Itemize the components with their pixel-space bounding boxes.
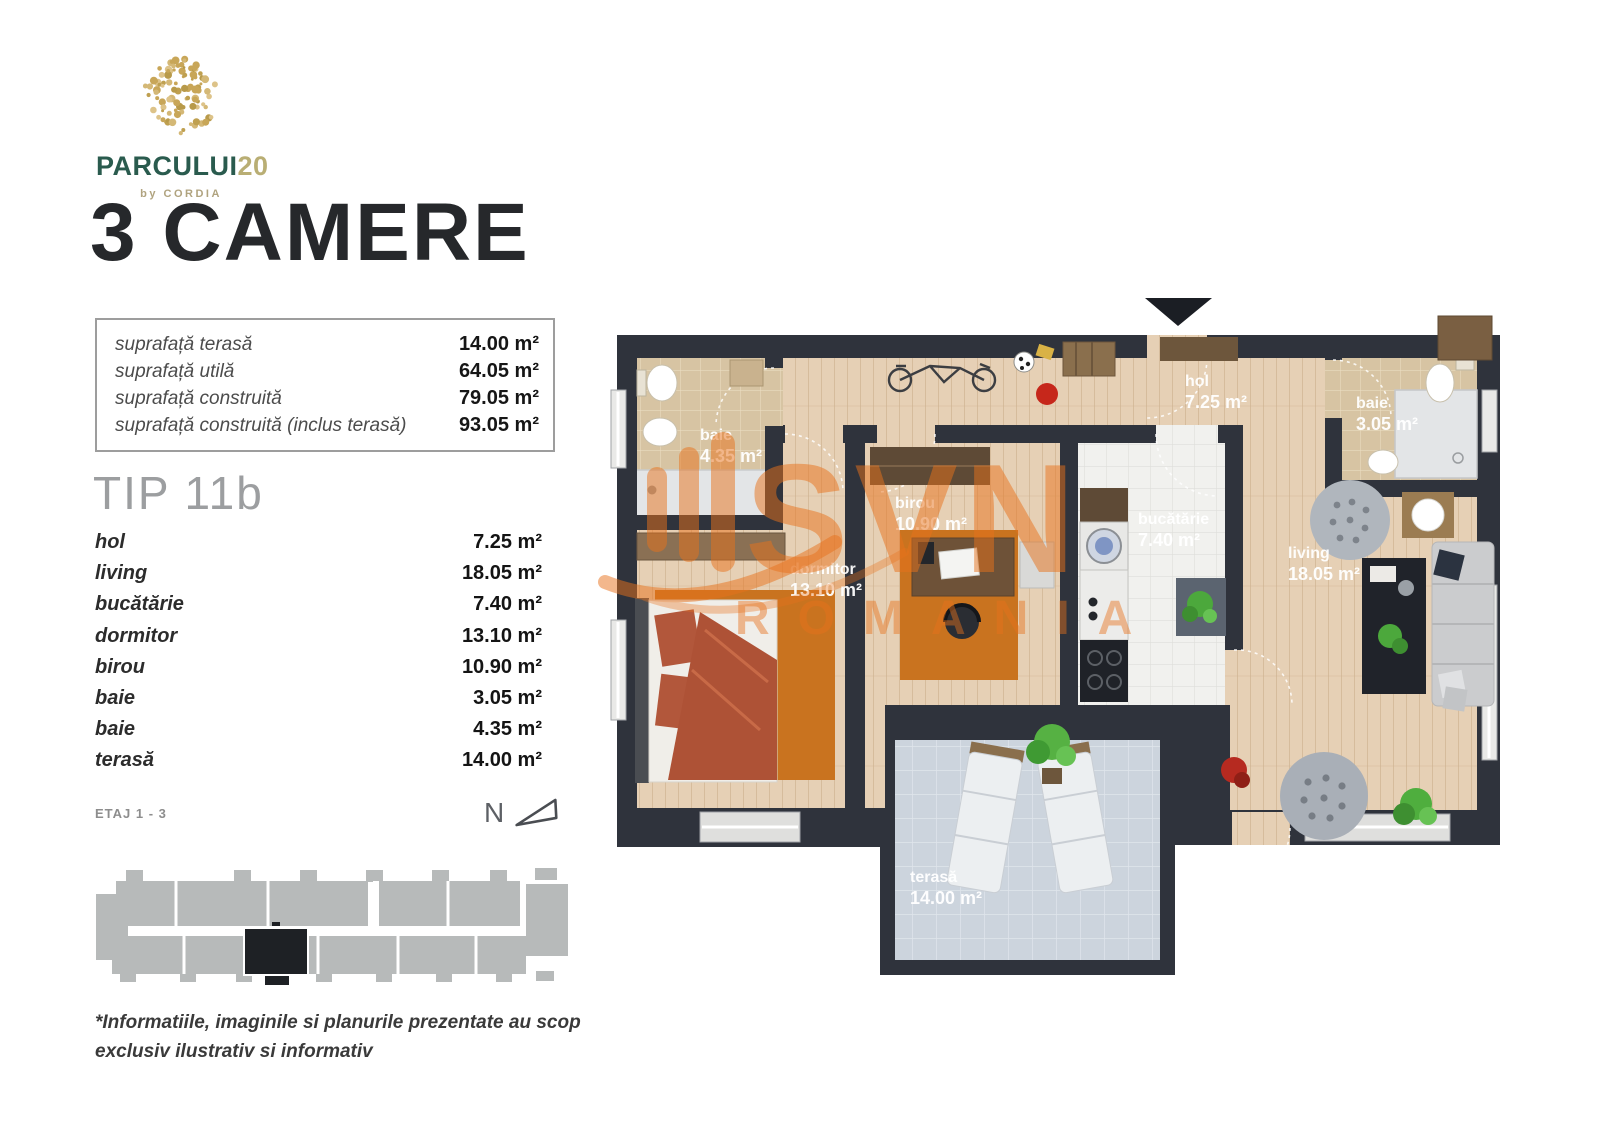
table-row: suprafață construită (inclus terasă) 93.… — [115, 412, 539, 439]
room-label: baie — [95, 714, 135, 745]
entrance-arrow-icon — [1145, 298, 1212, 326]
table-row: suprafață construită 79.05 m² — [115, 385, 539, 412]
room-name: dormitor — [790, 561, 856, 578]
room-label: terasă — [95, 745, 154, 776]
room-area: 14.00 m² — [910, 888, 982, 908]
room-name: bucătărie — [1138, 511, 1209, 528]
floor-plan: baie 4.35 m² hol 7.25 m² baie 3.05 m² bi… — [600, 290, 1520, 990]
summary-label: suprafață terasă — [115, 331, 252, 358]
north-compass: N — [484, 797, 560, 829]
room-label: birou — [95, 652, 145, 683]
list-item: hol7.25 m² — [95, 527, 542, 558]
room-value: 13.10 m² — [462, 621, 542, 652]
summary-value: 64.05 m² — [459, 358, 539, 385]
room-name: hol — [1185, 373, 1209, 390]
room-area: 13.10 m² — [790, 580, 862, 600]
highlighted-unit — [244, 922, 308, 986]
brand-name: PARCULUI20 — [96, 151, 266, 182]
room-value: 7.25 m² — [473, 527, 542, 558]
summary-label: suprafață construită (inclus terasă) — [115, 412, 406, 439]
room-name: baie — [700, 427, 732, 444]
room-label: dormitor — [95, 621, 177, 652]
room-name: baie — [1356, 395, 1388, 412]
brand-logo: PARCULUI20 by CORDIA — [96, 50, 266, 200]
room-area: 10.90 m² — [895, 514, 967, 534]
room-label: bucătărie — [95, 589, 184, 620]
unit-type-label: TIP 11b — [93, 466, 264, 520]
disclaimer-line: exclusiv ilustrativ si informativ — [95, 1037, 585, 1066]
summary-label: suprafață construită — [115, 385, 282, 412]
room-area: 3.05 m² — [1356, 414, 1418, 434]
list-item: birou10.90 m² — [95, 652, 542, 683]
room-area: 4.35 m² — [700, 446, 762, 466]
summary-label: suprafață utilă — [115, 358, 234, 385]
room-value: 10.90 m² — [462, 652, 542, 683]
room-value: 4.35 m² — [473, 714, 542, 745]
floor-range-label: ETAJ 1 - 3 — [95, 806, 167, 821]
room-value: 3.05 m² — [473, 683, 542, 714]
area-summary-table: suprafață terasă 14.00 m² suprafață util… — [95, 318, 555, 452]
table-row: suprafață terasă 14.00 m² — [115, 331, 539, 358]
table-row: suprafață utilă 64.05 m² — [115, 358, 539, 385]
list-item: dormitor13.10 m² — [95, 621, 542, 652]
summary-value: 79.05 m² — [459, 385, 539, 412]
room-label: hol — [95, 527, 125, 558]
list-item: bucătărie7.40 m² — [95, 589, 542, 620]
summary-value: 14.00 m² — [459, 331, 539, 358]
brand-name-primary: PARCULUI — [96, 151, 238, 181]
disclaimer-line: *Informatiile, imaginile si planurile pr… — [95, 1008, 585, 1037]
room-area: 7.25 m² — [1185, 392, 1247, 412]
room-area: 7.40 m² — [1138, 530, 1200, 550]
room-value: 7.40 m² — [473, 589, 542, 620]
list-item: baie4.35 m² — [95, 714, 542, 745]
list-item: baie3.05 m² — [95, 683, 542, 714]
room-value: 18.05 m² — [462, 558, 542, 589]
room-name: birou — [895, 495, 935, 512]
north-label: N — [484, 797, 504, 829]
brand-logo-dots-icon — [135, 50, 227, 142]
room-value: 14.00 m² — [462, 745, 542, 776]
room-label: living — [95, 558, 147, 589]
north-arrow-icon — [512, 797, 560, 829]
building-footprint-map — [88, 850, 576, 986]
list-item: living18.05 m² — [95, 558, 542, 589]
room-name: terasă — [910, 869, 957, 886]
page-title: 3 CAMERE — [90, 192, 530, 274]
brand-name-suffix: 20 — [238, 151, 269, 181]
room-label: baie — [95, 683, 135, 714]
room-name: living — [1288, 545, 1330, 562]
building-blocks — [96, 868, 568, 982]
disclaimer-text: *Informatiile, imaginile si planurile pr… — [95, 1008, 585, 1067]
room-area: 18.05 m² — [1288, 564, 1360, 584]
list-item: terasă14.00 m² — [95, 745, 542, 776]
room-list: hol7.25 m² living18.05 m² bucătărie7.40 … — [95, 527, 542, 777]
summary-value: 93.05 m² — [459, 412, 539, 439]
